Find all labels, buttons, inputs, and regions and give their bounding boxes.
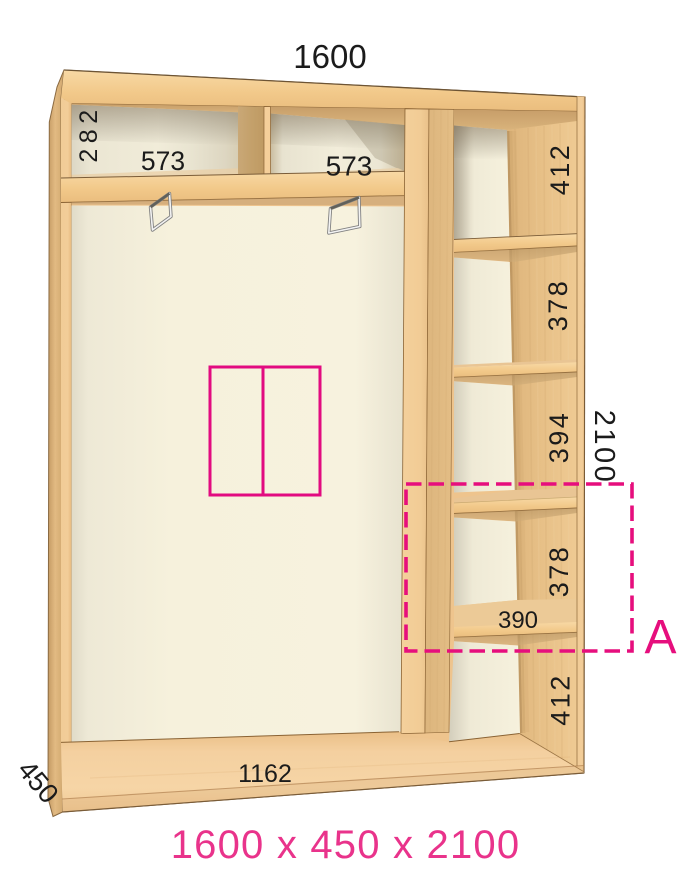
- svg-text:412: 412: [545, 143, 575, 196]
- svg-text:573: 573: [141, 146, 185, 176]
- svg-text:378: 378: [544, 545, 574, 598]
- svg-text:378: 378: [543, 279, 573, 332]
- svg-text:1600: 1600: [293, 38, 366, 75]
- svg-text:412: 412: [546, 673, 576, 726]
- svg-text:A: A: [644, 611, 676, 664]
- svg-text:1600 x 450 x 2100: 1600 x 450 x 2100: [171, 823, 521, 867]
- svg-text:573: 573: [326, 151, 373, 182]
- svg-text:394: 394: [544, 411, 574, 464]
- svg-text:1162: 1162: [238, 760, 292, 788]
- svg-text:282: 282: [75, 104, 103, 162]
- svg-text:2100: 2100: [588, 410, 620, 485]
- svg-text:390: 390: [498, 607, 538, 634]
